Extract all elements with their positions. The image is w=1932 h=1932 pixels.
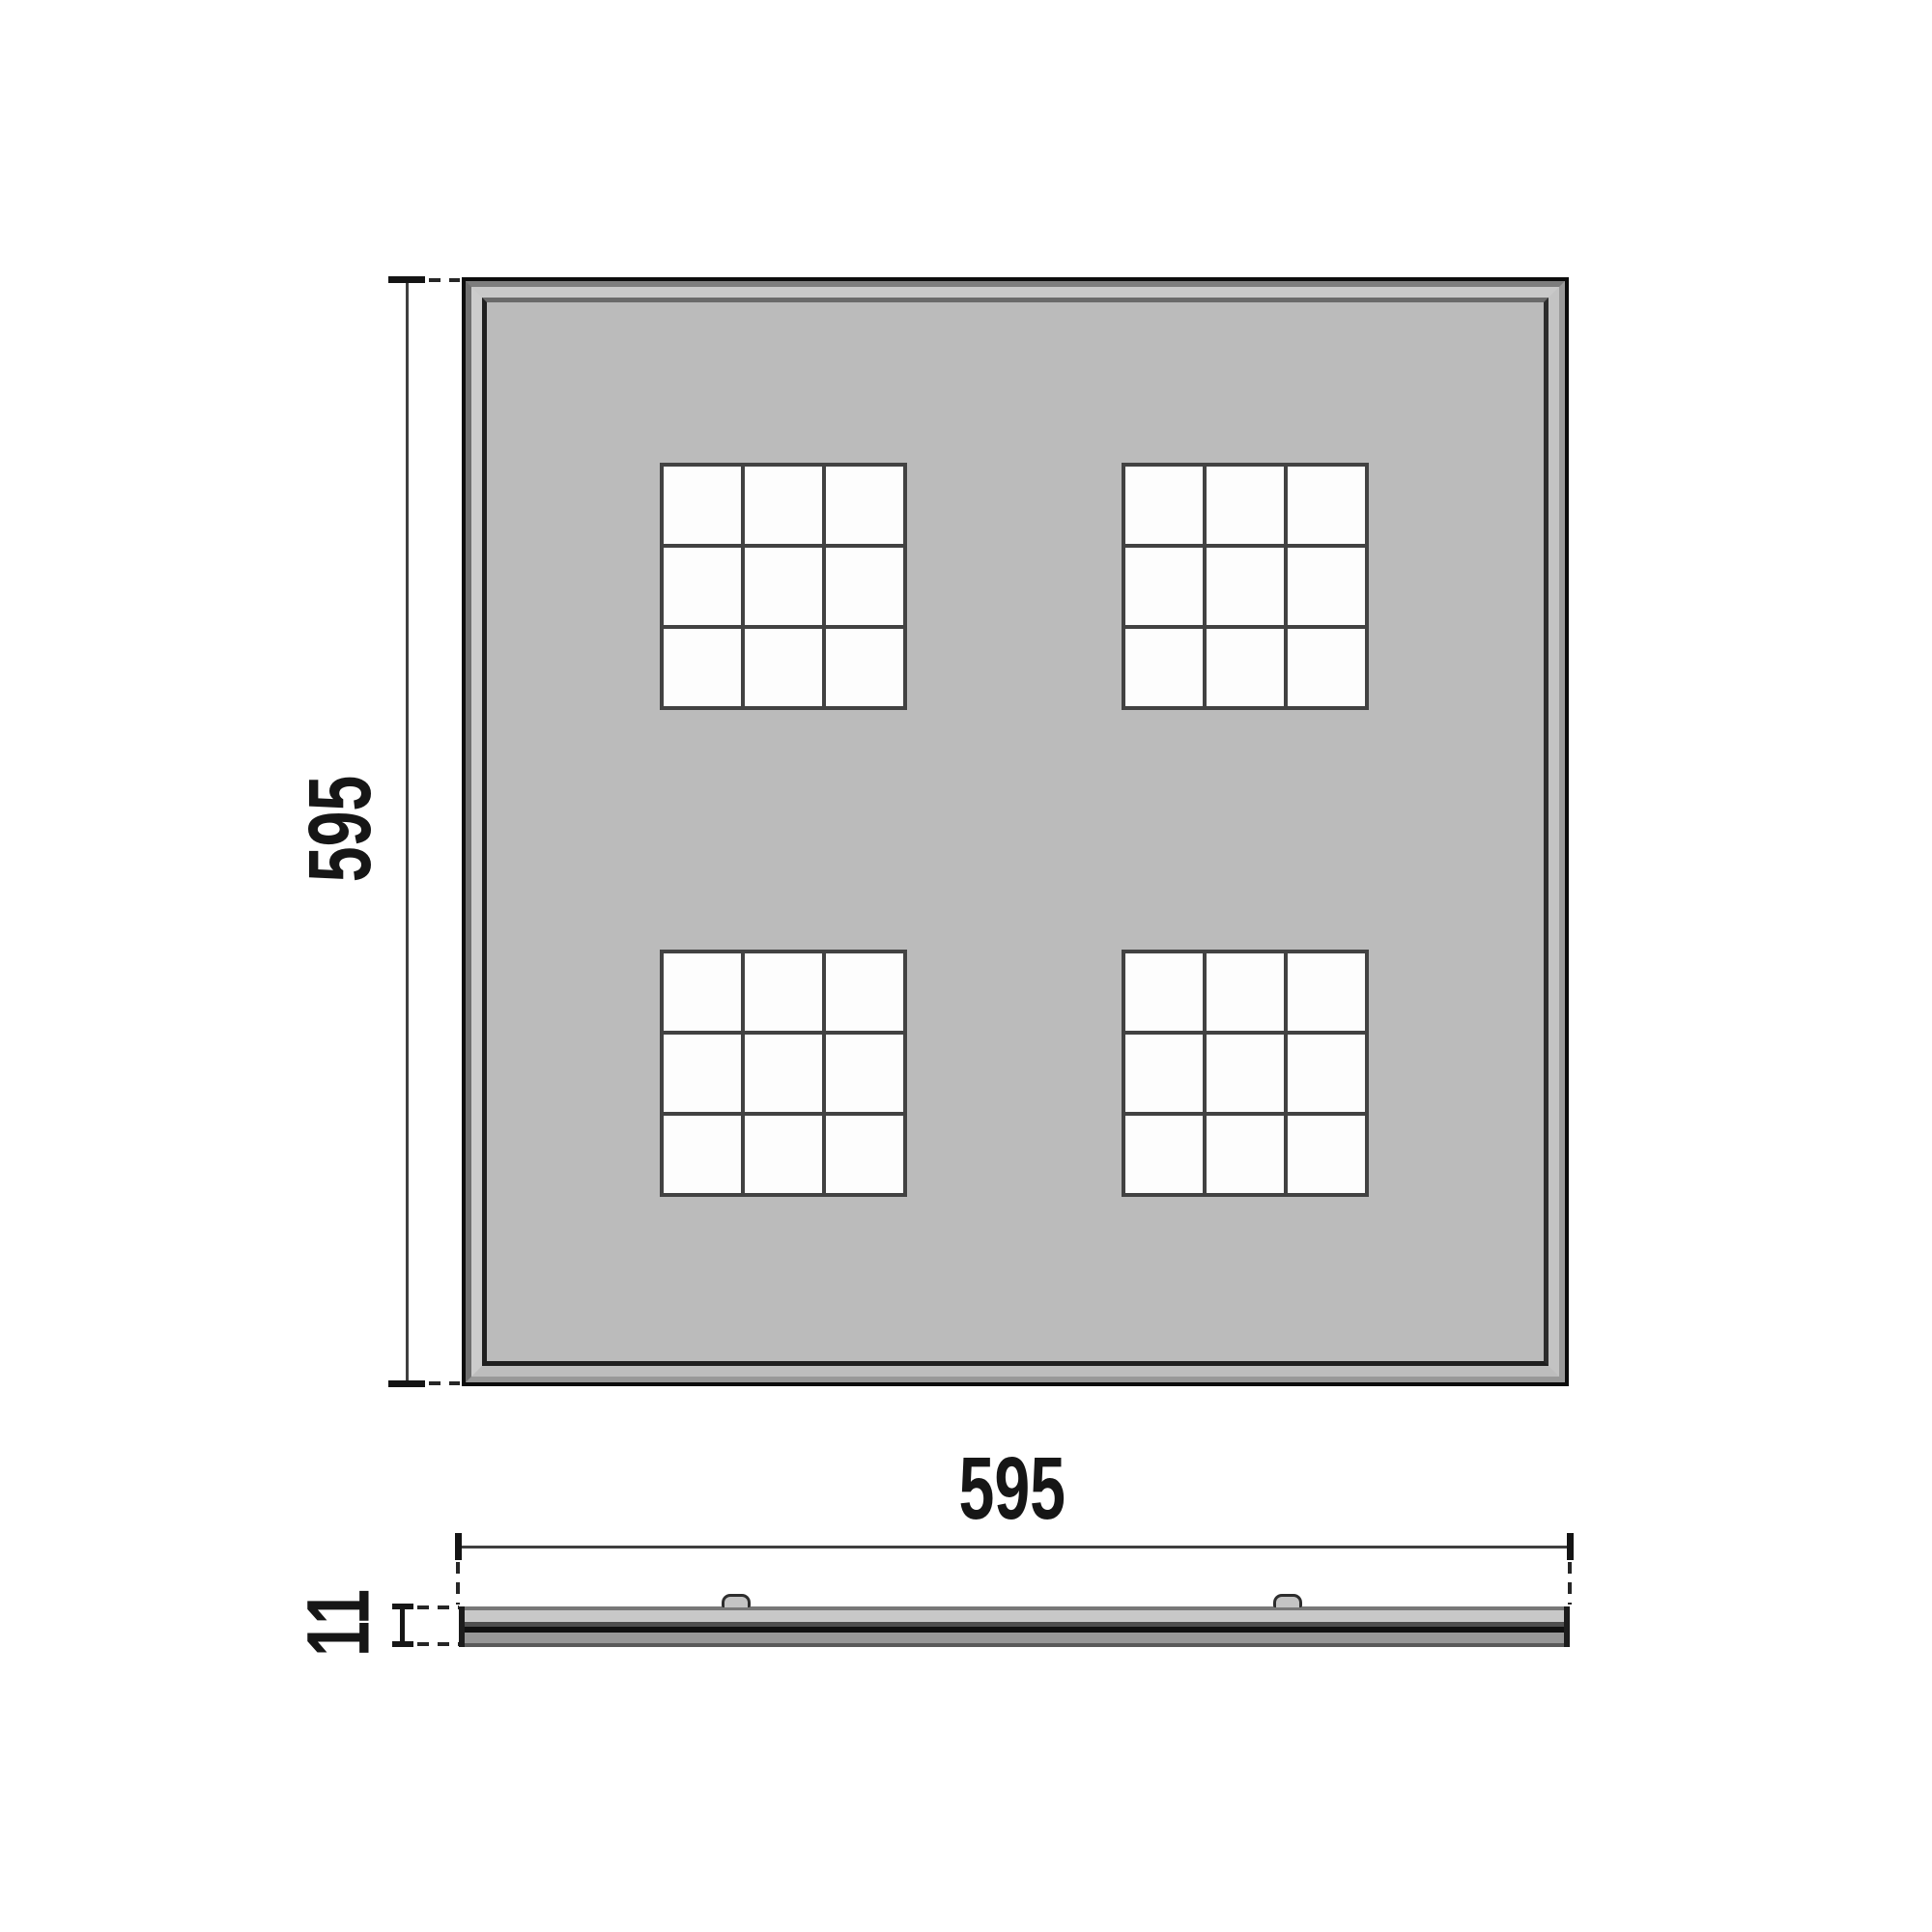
thickness-dimension-label: 11 <box>271 1565 407 1681</box>
module-cell <box>745 953 822 1031</box>
frame-outer-bevel <box>466 281 1565 1382</box>
width-extension-dash-right <box>1568 1562 1572 1605</box>
module-cell <box>1288 467 1365 544</box>
led-module-top-left <box>660 463 907 710</box>
module-cell <box>1125 467 1203 544</box>
module-cell <box>826 1116 903 1193</box>
module-cell <box>826 629 903 706</box>
module-cell <box>1288 1035 1365 1112</box>
module-cell <box>1288 1116 1365 1193</box>
module-cell <box>826 1035 903 1112</box>
dimension-drawing: 595 595 11 <box>0 0 1932 1932</box>
module-cell <box>1125 1035 1203 1112</box>
module-cell <box>664 629 741 706</box>
module-cell <box>826 548 903 625</box>
led-module-bottom-left <box>660 950 907 1197</box>
profile-end-cap-left <box>459 1606 465 1647</box>
width-dimension-tick-right <box>1567 1533 1574 1560</box>
height-dimension-label: 595 <box>272 771 408 887</box>
profile-lower-band <box>459 1633 1570 1643</box>
module-cell <box>1288 953 1365 1031</box>
module-cell <box>745 1116 822 1193</box>
module-cell <box>1125 1116 1203 1193</box>
module-cell <box>664 953 741 1031</box>
frame-light-bevel <box>471 287 1559 1377</box>
profile-upper-band <box>459 1610 1570 1622</box>
mounting-clip-left <box>722 1594 751 1607</box>
height-extension-dash-top <box>429 278 460 282</box>
module-cell <box>1125 953 1203 1031</box>
width-dimension-label: 595 <box>945 1431 1080 1547</box>
side-view-profile <box>459 1606 1570 1647</box>
module-cell <box>1207 1116 1284 1193</box>
module-cell <box>1207 467 1284 544</box>
module-cell <box>745 548 822 625</box>
module-cell <box>1288 629 1365 706</box>
led-module-top-right <box>1122 463 1369 710</box>
panel-face <box>487 302 1544 1361</box>
module-cell <box>745 467 822 544</box>
front-view-panel-frame <box>462 277 1569 1386</box>
mounting-clip-right <box>1273 1594 1302 1607</box>
module-cell <box>664 1035 741 1112</box>
module-cell <box>745 629 822 706</box>
module-cell <box>664 467 741 544</box>
module-cell <box>826 953 903 1031</box>
thickness-leader-dash-top <box>417 1605 459 1609</box>
module-cell <box>1207 548 1284 625</box>
height-dimension-tick-top <box>388 276 425 283</box>
profile-bottom-edge <box>459 1643 1570 1647</box>
width-extension-dash-left <box>456 1562 460 1605</box>
module-cell <box>745 1035 822 1112</box>
module-cell <box>664 548 741 625</box>
module-cell <box>664 1116 741 1193</box>
module-cell <box>1125 548 1203 625</box>
module-cell <box>1125 629 1203 706</box>
height-dimension-tick-bottom <box>388 1380 425 1387</box>
height-extension-dash-bottom <box>429 1381 460 1385</box>
module-cell <box>826 467 903 544</box>
profile-end-cap-right <box>1564 1606 1570 1647</box>
led-module-bottom-right <box>1122 950 1369 1197</box>
module-cell <box>1207 953 1284 1031</box>
module-cell <box>1207 1035 1284 1112</box>
thickness-leader-dash-bottom <box>417 1642 459 1646</box>
module-cell <box>1288 548 1365 625</box>
frame-inner-shadow <box>482 298 1548 1366</box>
width-dimension-tick-left <box>455 1533 462 1560</box>
module-cell <box>1207 629 1284 706</box>
